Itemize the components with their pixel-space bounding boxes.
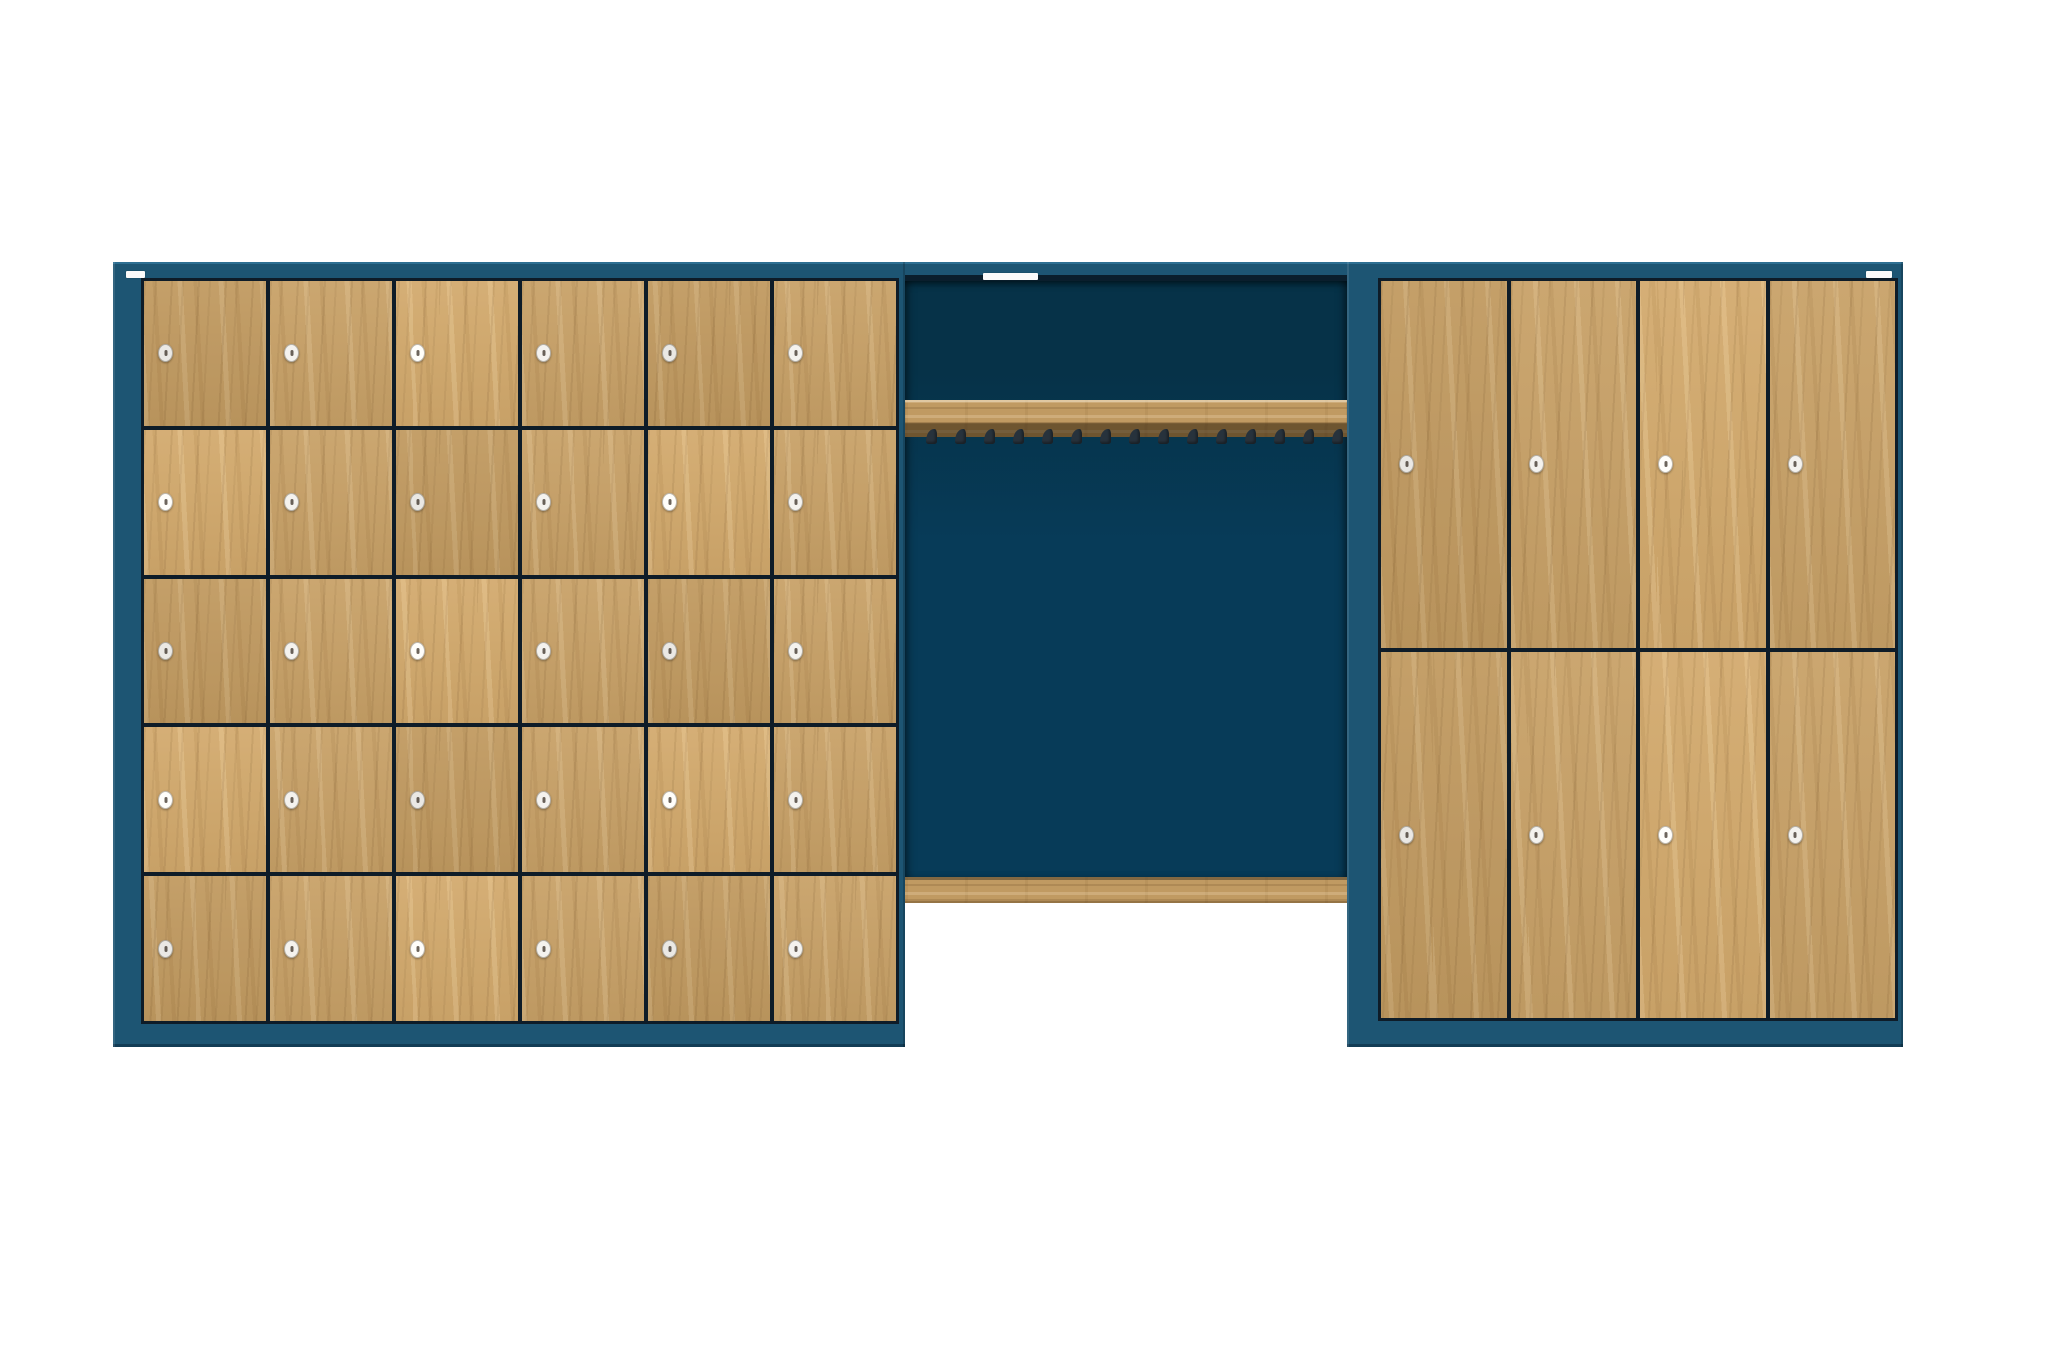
lock-icon [410, 642, 425, 660]
coat-hook-icon [1042, 429, 1053, 444]
locker-door [1511, 652, 1637, 1019]
locker-door [648, 579, 770, 724]
lock-icon [410, 940, 425, 958]
label-sticker-middle [983, 273, 1038, 280]
coat-hook-icon [1187, 429, 1198, 444]
lock-icon [158, 791, 173, 809]
locker-door [1511, 281, 1637, 648]
locker-door [270, 727, 392, 872]
lock-icon [410, 791, 425, 809]
right-locker-unit [1347, 262, 1903, 1047]
coat-hook-icon [1216, 429, 1227, 444]
locker-door [144, 876, 266, 1021]
lock-icon [158, 493, 173, 511]
coat-hook-icon [1303, 429, 1314, 444]
lock-icon [662, 642, 677, 660]
coat-hook-icon [926, 429, 937, 444]
coat-hook-icon [1100, 429, 1111, 444]
niche-top-rail [905, 262, 1347, 281]
lock-icon [662, 493, 677, 511]
coat-hook-icon [1158, 429, 1169, 444]
coat-hook-icon [1274, 429, 1285, 444]
left-locker-door-grid [141, 278, 899, 1024]
coat-hook-icon [1129, 429, 1140, 444]
lock-icon [536, 791, 551, 809]
lock-icon [1529, 826, 1544, 844]
locker-door [774, 727, 896, 872]
locker-door [1640, 652, 1766, 1019]
lock-icon [1788, 455, 1803, 473]
locker-door [144, 579, 266, 724]
right-locker-door-grid [1378, 278, 1898, 1021]
locker-door [774, 281, 896, 426]
locker-door [522, 430, 644, 575]
lock-icon [1658, 455, 1673, 473]
lock-icon [1399, 455, 1414, 473]
locker-door [522, 727, 644, 872]
locker-door [774, 430, 896, 575]
locker-door [270, 579, 392, 724]
locker-door [396, 281, 518, 426]
lock-icon [662, 791, 677, 809]
lock-icon [788, 493, 803, 511]
locker-door [774, 876, 896, 1021]
locker-door [144, 727, 266, 872]
locker-door [648, 727, 770, 872]
locker-door [1381, 281, 1507, 648]
lock-icon [158, 642, 173, 660]
lock-icon [536, 493, 551, 511]
bench-rail [905, 877, 1347, 903]
lock-icon [1658, 826, 1673, 844]
lock-icon [284, 344, 299, 362]
locker-door [270, 430, 392, 575]
locker-door [522, 876, 644, 1021]
coat-hook-icon [1013, 429, 1024, 444]
locker-door [648, 281, 770, 426]
locker-door [648, 430, 770, 575]
locker-door [1770, 281, 1896, 648]
lock-icon [1529, 455, 1544, 473]
label-sticker-right [1866, 271, 1892, 278]
locker-door [648, 876, 770, 1021]
locker-door [396, 430, 518, 575]
lock-icon [788, 940, 803, 958]
coat-hook-icon [984, 429, 995, 444]
lock-icon [158, 940, 173, 958]
lock-icon [158, 344, 173, 362]
locker-door [1770, 652, 1896, 1019]
coat-hook-icon [1071, 429, 1082, 444]
locker-door [774, 579, 896, 724]
locker-wall-render [0, 0, 2048, 1365]
locker-door [144, 281, 266, 426]
lock-icon [536, 642, 551, 660]
lock-icon [662, 344, 677, 362]
locker-door [522, 579, 644, 724]
lock-icon [536, 940, 551, 958]
locker-door [396, 579, 518, 724]
locker-door [1640, 281, 1766, 648]
lock-icon [284, 493, 299, 511]
locker-door [396, 727, 518, 872]
lock-icon [788, 642, 803, 660]
lock-icon [1399, 826, 1414, 844]
coat-hook-icon [1332, 429, 1343, 444]
lock-icon [788, 344, 803, 362]
lock-icon [788, 791, 803, 809]
lock-icon [410, 493, 425, 511]
lock-icon [284, 940, 299, 958]
lock-icon [284, 791, 299, 809]
locker-door [270, 876, 392, 1021]
lock-icon [536, 344, 551, 362]
coat-hook-icon [1245, 429, 1256, 444]
niche-back-panel [905, 281, 1347, 877]
locker-door [270, 281, 392, 426]
locker-door [522, 281, 644, 426]
lock-icon [410, 344, 425, 362]
locker-door [144, 430, 266, 575]
left-locker-unit [113, 262, 905, 1047]
lock-icon [662, 940, 677, 958]
coat-hook-icon [955, 429, 966, 444]
lock-icon [284, 642, 299, 660]
locker-door [1381, 652, 1507, 1019]
lock-icon [1788, 826, 1803, 844]
locker-door [396, 876, 518, 1021]
label-sticker-left [126, 271, 145, 278]
